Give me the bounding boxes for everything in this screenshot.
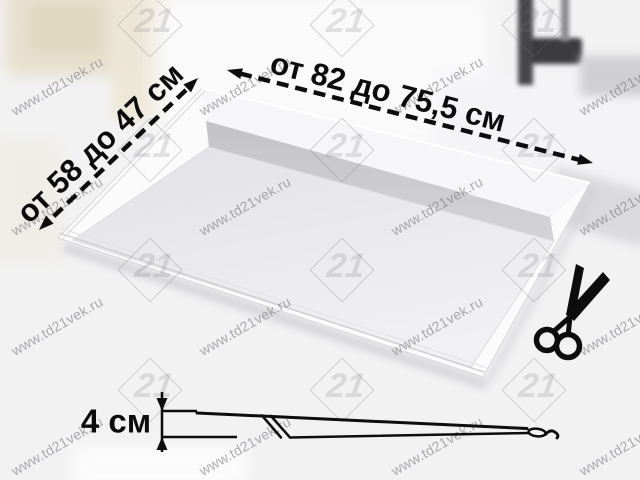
scissors-icon (537, 264, 611, 358)
product-dimension-illustration: www.td21vek.ruwww.td21vek.ruwww.td21vek.… (0, 0, 640, 480)
height-dimension-marks (157, 392, 238, 452)
height-dimension-label: 4 см (81, 405, 151, 438)
side-profile-drawing (197, 413, 558, 438)
